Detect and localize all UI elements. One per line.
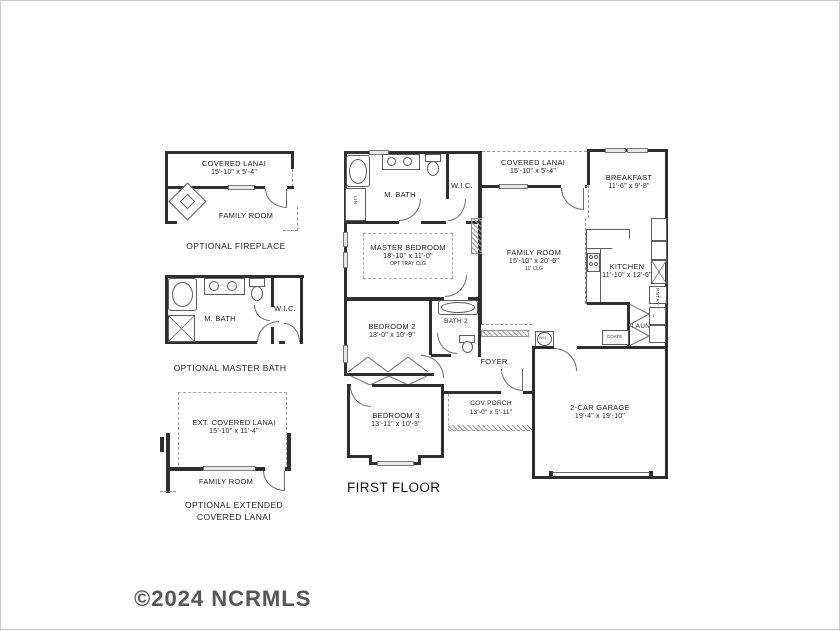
wall [300,341,303,344]
floor-plan-image: COVERED LANAI 15'-10" x 5'-4" FAMILY ROO… [0,0,840,630]
kitchen-cabinet-x [651,260,667,284]
room-dims: 11'-6" x 9'-8" [608,183,649,191]
garage-entry-door-swing [554,348,577,371]
wall [168,151,294,154]
existing-wall-dashed [283,230,298,231]
closet-label: COATS [607,334,622,339]
wall [254,186,265,189]
washer [649,307,666,325]
water-heater-label: W.H. [539,336,547,340]
wall [577,346,668,349]
window [343,252,348,268]
room-dims: 13'-0" x 10'-9" [369,332,415,340]
wall [271,275,274,307]
wall [587,149,590,185]
option-caption-line2: COVERED LANAI [197,512,271,522]
cased-opening-hatch [481,330,529,337]
room-label: BEDROOM 3 [372,411,419,420]
room-dims: 15'-10" x 11'-4" [209,428,259,436]
sink [403,157,412,166]
bathtub-basin [349,159,367,184]
wall [478,297,481,357]
window [343,232,348,247]
wall [532,346,554,349]
door-swing [257,321,279,342]
room-label: W.I.C. [274,304,296,313]
wall [585,185,587,188]
room-label: COV PORCH [470,400,512,408]
bedroom2-closet-bifold [348,357,428,372]
garage-door-panel [553,472,649,473]
wall [160,437,164,452]
toilet-bowl [462,341,473,353]
room-dims: 11'-10" x 12'-6" [602,272,652,280]
fireplace-wall-hatch [471,218,482,254]
wall [649,471,653,477]
room-label: COVERED LANAI [501,158,565,167]
wall [344,221,399,224]
door-swing [399,199,421,221]
wall [549,471,553,477]
closet-label: PNTRY [655,288,660,306]
existing-wall-dashed [292,169,293,187]
door-swing [350,386,371,407]
wall [300,275,303,344]
window [203,466,256,471]
wall [418,455,444,458]
appliance-mark: I [653,313,654,318]
door-swing [284,323,300,342]
front-door-swing [501,369,523,391]
door-swing [445,275,467,297]
range-burner [594,262,598,266]
room-label: FAMILY ROOM [507,248,561,257]
ceiling-break-dashed [481,324,532,325]
room-label: MASTER BEDROOM [370,243,446,252]
door-swing [263,471,285,491]
kitchen-peninsula-counter [586,229,630,249]
room-note: OPT TRAY CLG [390,262,426,268]
door-swing [254,305,270,321]
window [377,461,414,466]
sink [387,157,396,166]
room-dims: 13'-11" x 10'-3" [371,421,421,429]
toilet-bowl [427,161,439,176]
dryer [649,325,666,343]
laundry-bifold-door [629,304,651,346]
wall [165,191,168,224]
lanai-screen-dashed [482,151,587,152]
shower [168,315,195,342]
room-label: 2-CAR GARAGE [570,403,630,412]
room-note: 11' CLG [525,267,543,273]
room-label: BATH 2 [444,318,468,326]
window [605,148,626,153]
existing-wall-dashed [297,207,298,231]
bathtub-basin [441,302,475,313]
plan-title: FIRST FLOOR [347,480,440,495]
wall [165,151,168,191]
watermark: ©2024 NCRMLS [134,586,311,612]
kitchen-cabinet [651,218,667,241]
option-caption: OPTIONAL FIREPLACE [186,241,285,251]
room-label: BREAKFAST [606,173,652,182]
wall [165,221,177,224]
room-label: FAMILY ROOM [219,211,273,220]
wall [429,297,432,355]
wall [287,186,294,189]
porch-step-hatch [448,425,535,431]
sink [227,281,237,291]
window [499,184,528,189]
window [228,185,255,190]
wall [532,346,535,479]
room-label: M. BATH [204,314,236,323]
refrigerator [651,241,667,260]
window [627,148,648,153]
wall [441,384,444,458]
room-dims: 19'-4" x 19'-10" [575,413,625,421]
sink [209,281,219,291]
room-label: COVERED LANAI [202,159,266,168]
room-label: EXT. COVERED LANAI [192,418,275,427]
option-caption-line1: OPTIONAL EXTENDED [185,500,283,510]
wall [168,186,229,189]
bathtub-basin [172,282,193,307]
room-dims: 13'-0" x 5'-11" [470,409,513,417]
wall [166,433,170,493]
door-swing [437,333,457,354]
room-dims: 15'-10" x 5'-4" [510,168,556,176]
wall [285,467,291,471]
existing-wall-dashed [160,491,176,492]
wall [166,467,204,471]
room-label: KITCHEN [610,262,645,271]
room-label: BEDROOM 2 [368,322,415,331]
door-swing [448,199,466,221]
room-label: M. BATH [384,190,416,199]
wall [421,221,446,224]
door-swing [561,188,584,210]
closet-label: LIN [353,196,358,205]
wall [587,302,629,305]
room-label: W.I.C. [451,181,473,190]
toilet-bowl [251,286,263,301]
wall [287,433,291,471]
door-swing [421,355,444,378]
wall [446,151,449,199]
room-dims: 15'-10" x 5'-4" [211,169,257,177]
room-label: FAMILY ROOM [199,477,253,486]
option-caption: OPTIONAL MASTER BATH [174,363,287,373]
room-label: FOYER [480,357,507,366]
range-burner [589,262,593,266]
door-swing [265,189,287,208]
wall [291,151,294,169]
wall [478,151,482,188]
range-burner [589,255,593,259]
wall [347,384,350,458]
wall [372,384,443,387]
room-divider-dashed [588,185,589,218]
range-burner [594,255,598,259]
wall [431,354,451,357]
